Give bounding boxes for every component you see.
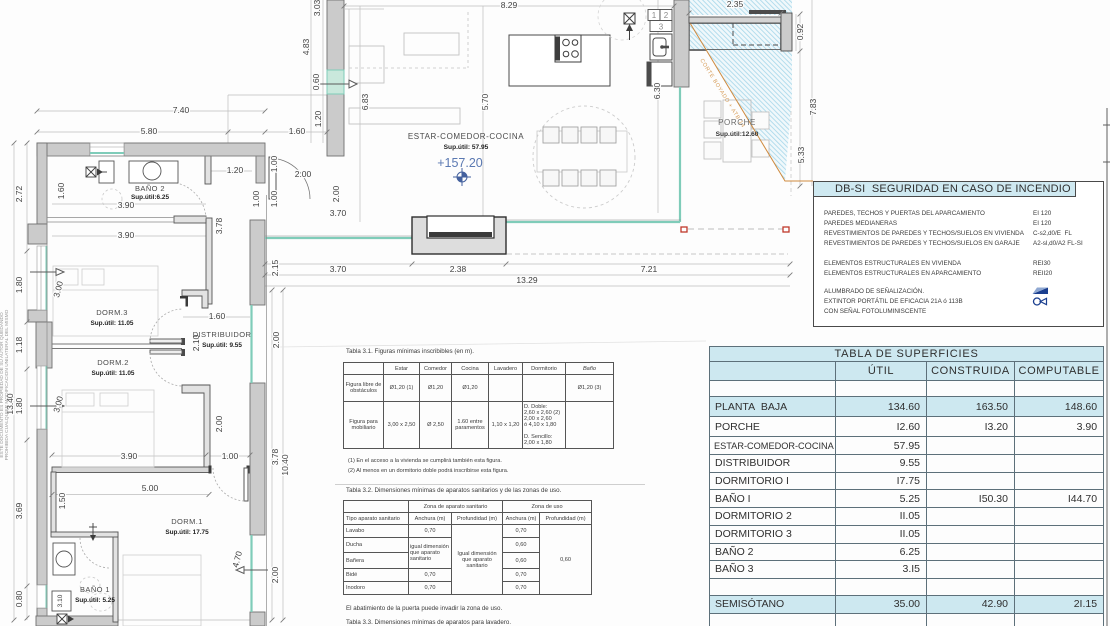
svg-text:DORM.2: DORM.2 bbox=[97, 358, 129, 367]
svg-text:0.60: 0.60 bbox=[311, 73, 321, 90]
svg-text:5.00: 5.00 bbox=[142, 483, 159, 493]
svg-text:1.00: 1.00 bbox=[269, 155, 279, 172]
svg-text:5.33: 5.33 bbox=[796, 146, 806, 163]
svg-text:1.60: 1.60 bbox=[289, 126, 306, 136]
svg-text:1.00: 1.00 bbox=[269, 190, 279, 207]
svg-text:1.18: 1.18 bbox=[14, 336, 24, 353]
svg-text:5.70: 5.70 bbox=[480, 93, 490, 110]
svg-text:0.92: 0.92 bbox=[795, 23, 805, 40]
svg-text:2.15: 2.15 bbox=[270, 259, 280, 276]
svg-text:1.00: 1.00 bbox=[251, 190, 261, 207]
svg-text:+157.20: +157.20 bbox=[437, 156, 483, 170]
svg-text:Sup.útil: 9.55: Sup.útil: 9.55 bbox=[202, 342, 242, 349]
svg-text:1.20: 1.20 bbox=[227, 165, 244, 175]
svg-text:Sup.útil: 5.25: Sup.útil: 5.25 bbox=[75, 597, 115, 604]
svg-text:Sup.útil: 11.05: Sup.útil: 11.05 bbox=[91, 320, 134, 327]
svg-text:3.00: 3.00 bbox=[51, 395, 65, 414]
svg-text:3.78: 3.78 bbox=[270, 448, 280, 465]
svg-text:4.70: 4.70 bbox=[230, 550, 244, 569]
svg-text:3.78: 3.78 bbox=[214, 217, 224, 234]
svg-text:10.40: 10.40 bbox=[280, 454, 290, 476]
svg-text:3.70: 3.70 bbox=[330, 264, 347, 274]
svg-text:PROHIBIDA CUALQUIER MODIFICACI: PROHIBIDA CUALQUIER MODIFICACION UNILATE… bbox=[4, 309, 10, 460]
svg-text:5.80: 5.80 bbox=[141, 126, 158, 136]
svg-text:3.90: 3.90 bbox=[118, 200, 135, 210]
svg-text:Sup.útil: 57.95: Sup.útil: 57.95 bbox=[444, 144, 489, 151]
svg-text:1.60: 1.60 bbox=[209, 311, 226, 321]
svg-text:2.72: 2.72 bbox=[14, 185, 24, 202]
svg-text:2.38: 2.38 bbox=[450, 264, 467, 274]
svg-text:2.35: 2.35 bbox=[727, 0, 744, 9]
svg-text:3.69: 3.69 bbox=[14, 502, 24, 519]
svg-text:8.29: 8.29 bbox=[501, 0, 518, 10]
svg-text:DORM.1: DORM.1 bbox=[171, 517, 203, 526]
svg-text:2: 2 bbox=[664, 11, 669, 20]
svg-text:1.60: 1.60 bbox=[56, 182, 66, 199]
svg-text:2.00: 2.00 bbox=[295, 169, 312, 179]
svg-text:ESTAR-COMEDOR-COCINA: ESTAR-COMEDOR-COCINA bbox=[408, 132, 524, 141]
svg-text:DORM.3: DORM.3 bbox=[96, 308, 128, 317]
svg-text:3.70: 3.70 bbox=[330, 208, 347, 218]
svg-text:2.00: 2.00 bbox=[214, 415, 224, 432]
svg-text:2.00: 2.00 bbox=[270, 566, 280, 583]
svg-text:6.30: 6.30 bbox=[652, 82, 662, 99]
svg-text:Sup.útil: 17.75: Sup.útil: 17.75 bbox=[165, 529, 209, 536]
svg-text:BAÑO 2: BAÑO 2 bbox=[135, 184, 165, 193]
svg-text:2.00: 2.00 bbox=[271, 331, 281, 348]
svg-text:Sup.útil:12.60: Sup.útil:12.60 bbox=[716, 131, 759, 138]
svg-text:BAÑO 1: BAÑO 1 bbox=[80, 585, 110, 594]
svg-text:PORCHE: PORCHE bbox=[718, 118, 756, 127]
svg-text:6.83: 6.83 bbox=[360, 93, 370, 110]
svg-text:1.50: 1.50 bbox=[57, 492, 67, 509]
svg-text:3.10: 3.10 bbox=[57, 594, 64, 607]
svg-text:DISTRIBUIDOR: DISTRIBUIDOR bbox=[193, 330, 252, 339]
svg-text:4.83: 4.83 bbox=[301, 38, 311, 55]
svg-text:1.00: 1.00 bbox=[222, 451, 239, 461]
svg-text:7.40: 7.40 bbox=[173, 105, 190, 115]
svg-text:2.00: 2.00 bbox=[331, 185, 341, 202]
svg-text:1: 1 bbox=[652, 11, 657, 20]
svg-text:Sup.útil: 11.05: Sup.útil: 11.05 bbox=[92, 370, 135, 377]
svg-text:1.80: 1.80 bbox=[14, 276, 24, 293]
svg-text:3: 3 bbox=[659, 23, 664, 32]
svg-text:7.21: 7.21 bbox=[641, 264, 658, 274]
svg-text:Sup.útil:6.25: Sup.útil:6.25 bbox=[131, 194, 169, 201]
svg-text:3.90: 3.90 bbox=[118, 230, 135, 240]
svg-text:1.20: 1.20 bbox=[313, 110, 323, 127]
svg-text:1.80: 1.80 bbox=[14, 397, 24, 414]
svg-text:13.29: 13.29 bbox=[516, 275, 538, 285]
svg-text:3.90: 3.90 bbox=[121, 451, 138, 461]
svg-text:3.03: 3.03 bbox=[312, 0, 322, 16]
svg-text:7.83: 7.83 bbox=[808, 98, 818, 115]
svg-text:0.80: 0.80 bbox=[14, 590, 24, 607]
